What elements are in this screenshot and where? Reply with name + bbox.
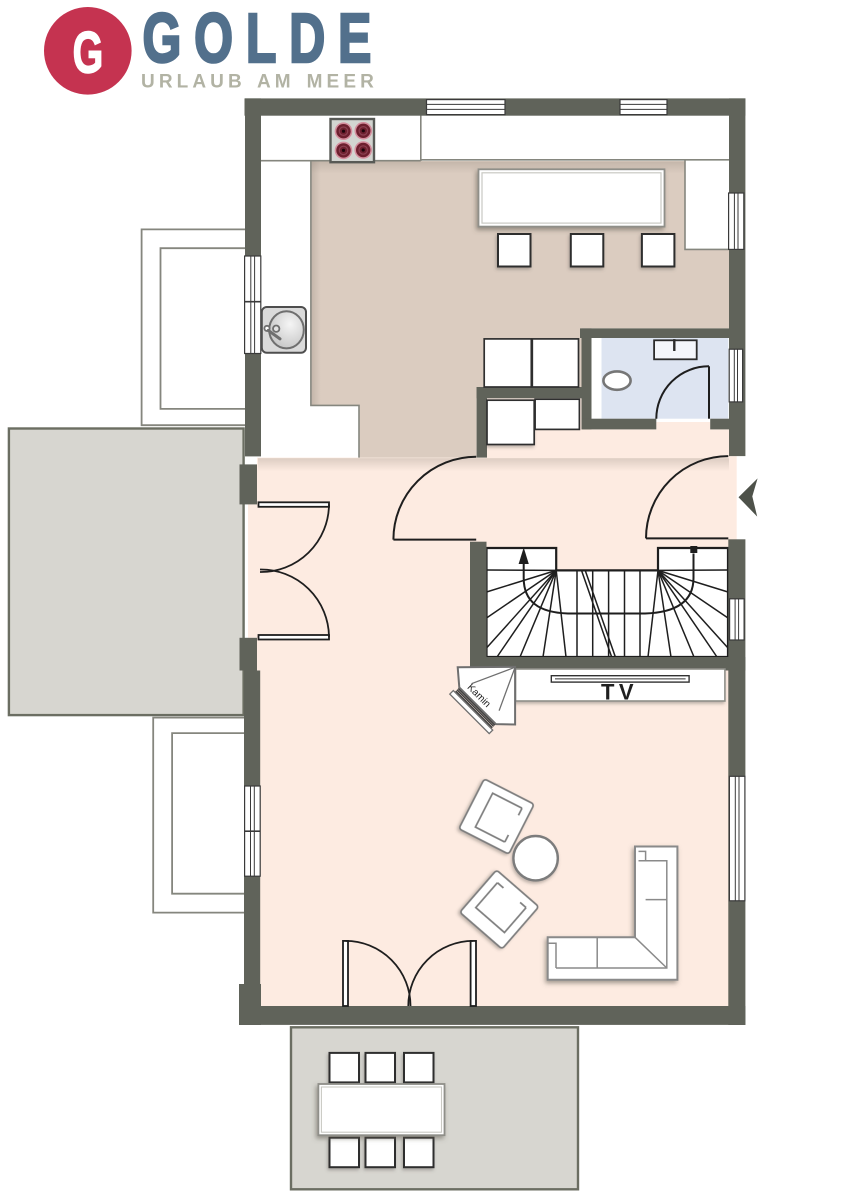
svg-text:TV: TV — [601, 680, 638, 705]
svg-text:G: G — [73, 20, 104, 85]
svg-text:URLAUB AM MEER: URLAUB AM MEER — [141, 72, 378, 93]
svg-text:GOLDE: GOLDE — [143, 0, 385, 77]
